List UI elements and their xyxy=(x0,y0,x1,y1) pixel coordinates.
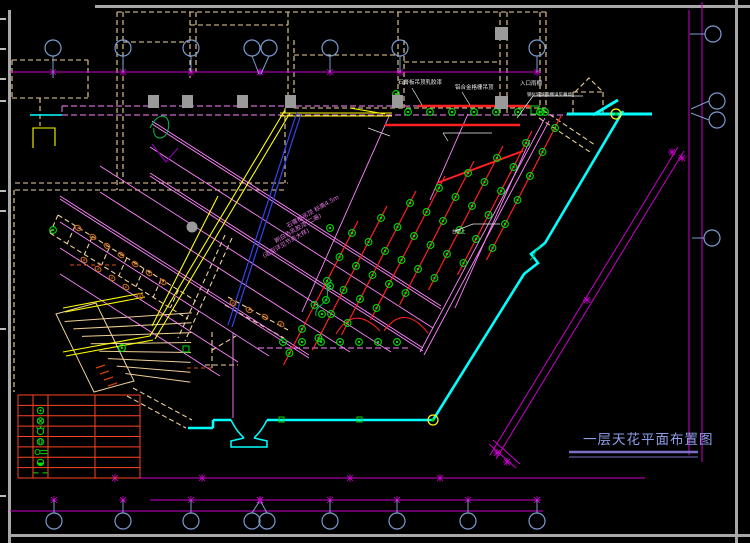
toilet-fixture xyxy=(108,274,116,282)
light-fixture xyxy=(328,311,335,318)
light-fixture xyxy=(485,212,492,219)
grid-bubble xyxy=(529,513,545,529)
light-fixture xyxy=(444,251,451,258)
misc-purple xyxy=(152,144,178,162)
axis-marker xyxy=(668,148,676,156)
legend-grid xyxy=(18,395,140,478)
light-fixture xyxy=(449,109,456,116)
grid-bubble xyxy=(115,513,131,529)
light-fixture xyxy=(340,287,347,294)
light-fixture xyxy=(542,109,549,116)
light-fixture xyxy=(365,239,372,246)
light-fixture xyxy=(356,339,363,346)
legend-symbol-wall-lamp xyxy=(35,450,48,455)
cad-drawing: 石膏板吊顶乳胶漆 铝合金格栅吊顶 入口雨棚 钢化玻璃雨棚详见幕墙 台阶上 石膏板… xyxy=(0,0,750,543)
layer-corridor xyxy=(33,108,392,356)
light-fixture xyxy=(469,203,476,210)
layer-green-deco xyxy=(150,106,540,422)
light-fixture xyxy=(539,149,546,156)
light-fixture xyxy=(402,290,409,297)
annotation-note: 入口雨棚 xyxy=(520,79,543,87)
drawing-title: 一层天花平面布置图 xyxy=(583,432,714,448)
axis-marker xyxy=(436,474,444,482)
grid-bubble xyxy=(259,513,275,529)
light-fixture xyxy=(394,339,401,346)
grid-bubble xyxy=(704,230,720,246)
toilet-fixture xyxy=(117,251,125,259)
light-fixture xyxy=(398,257,405,264)
light-fixture xyxy=(369,272,376,279)
light-fixture xyxy=(514,197,521,204)
annotation-note: 铝合金格栅吊顶 xyxy=(455,83,494,91)
toilet-fixture xyxy=(277,320,285,328)
light-fixture xyxy=(473,236,480,243)
axis-marker xyxy=(583,296,591,304)
toilet-fixture xyxy=(261,313,269,321)
drawing-title-block: 一层天花平面布置图 xyxy=(569,432,714,457)
light-fixture xyxy=(394,224,401,231)
circuit-line xyxy=(284,221,359,365)
light-fixture xyxy=(378,215,385,222)
toilet-fixture xyxy=(80,256,88,264)
grid-bubble xyxy=(183,40,199,56)
light-fixture xyxy=(498,188,505,195)
grid-bubble xyxy=(244,40,260,56)
circuit-line xyxy=(458,131,533,275)
grid-bubble xyxy=(389,513,405,529)
grid-bubble xyxy=(529,40,545,56)
light-fixture xyxy=(431,275,438,282)
legend-symbol-spotlight xyxy=(37,418,43,424)
frame-ruler-ticks xyxy=(0,18,6,497)
grid-bubble xyxy=(45,40,61,56)
grid-bubble xyxy=(183,513,199,529)
legend-symbol-downlight xyxy=(37,407,43,413)
toilet-fixture xyxy=(94,265,102,273)
grid-bubble xyxy=(322,40,338,56)
axis-marker xyxy=(256,496,264,504)
light-fixture xyxy=(386,281,393,288)
light-fixture xyxy=(502,221,509,228)
grid-bubble xyxy=(392,40,408,56)
light-fixture xyxy=(423,209,430,216)
grid-bubble xyxy=(709,93,725,109)
light-fixture xyxy=(280,339,287,346)
light-fixture xyxy=(427,109,434,116)
light-fixture xyxy=(349,230,356,237)
axis-marker xyxy=(503,458,511,466)
cad-viewport[interactable]: 石膏板吊顶乳胶漆 铝合金格栅吊顶 入口雨棚 钢化玻璃雨棚详见幕墙 台阶上 石膏板… xyxy=(0,0,750,543)
axis-marker xyxy=(346,474,354,482)
annotation-note: 钢化玻璃雨棚详见幕墙 xyxy=(527,91,572,98)
stairs-direction-hatch xyxy=(96,365,117,386)
legend-symbol-pendant-lamp xyxy=(37,426,45,435)
light-fixture xyxy=(493,109,500,116)
light-fixture xyxy=(407,200,414,207)
legend-symbol-dome-light xyxy=(37,459,43,465)
grid-bubble xyxy=(46,513,62,529)
light-fixture xyxy=(357,296,364,303)
circuit-line xyxy=(313,206,388,350)
light-fixture xyxy=(515,109,522,116)
grid-bubble xyxy=(460,513,476,529)
circuit-line xyxy=(371,176,446,320)
circuit-line xyxy=(487,116,562,260)
light-fixture xyxy=(327,225,334,232)
light-fixture xyxy=(286,350,293,357)
light-fixture xyxy=(299,326,306,333)
light-fixture xyxy=(452,194,459,201)
light-fixture xyxy=(415,266,422,273)
axis-marker xyxy=(198,474,206,482)
light-fixture xyxy=(427,242,434,249)
light-fixture xyxy=(471,109,478,116)
grid-bubble xyxy=(244,513,260,529)
toilet-fixture xyxy=(89,233,97,241)
toilet-fixture xyxy=(103,242,111,250)
annotation-note: 台阶上 xyxy=(452,228,466,235)
light-fixture xyxy=(382,248,389,255)
light-fixture xyxy=(510,164,517,171)
grid-bubble xyxy=(322,513,338,529)
legend-symbol-grille-light xyxy=(37,438,43,444)
light-fixture xyxy=(405,109,412,116)
light-fixture xyxy=(489,245,496,252)
light-fixture xyxy=(481,179,488,186)
light-fixture xyxy=(337,339,344,346)
annotation-note: 石膏板吊顶乳胶漆 xyxy=(398,78,443,86)
light-fixture xyxy=(411,233,418,240)
light-fixture xyxy=(436,185,443,192)
light-fixture xyxy=(353,263,360,270)
hall-notes: 石膏板吊顶 标高4.5m 刷白色乳胶漆(二遍) (造型详见节点大样) xyxy=(261,193,340,260)
axis-marker xyxy=(493,449,501,457)
legend-table xyxy=(18,395,140,478)
toilet-fixture xyxy=(122,283,130,291)
light-fixture xyxy=(527,173,534,180)
axis-marker xyxy=(678,154,686,162)
light-fixture xyxy=(299,339,306,346)
circuit-line xyxy=(342,191,417,335)
light-fixture xyxy=(50,227,57,234)
grid-bubble xyxy=(261,40,277,56)
toilet-fixture xyxy=(131,260,139,268)
light-fixture xyxy=(552,125,559,132)
light-fixture xyxy=(319,311,326,318)
light-fixture xyxy=(440,218,447,225)
light-fixture xyxy=(336,254,343,261)
grid-bubble xyxy=(709,112,725,128)
stairs xyxy=(56,303,192,392)
grid-bubble xyxy=(705,26,721,42)
light-fixture xyxy=(460,260,467,267)
light-fixture xyxy=(373,305,380,312)
